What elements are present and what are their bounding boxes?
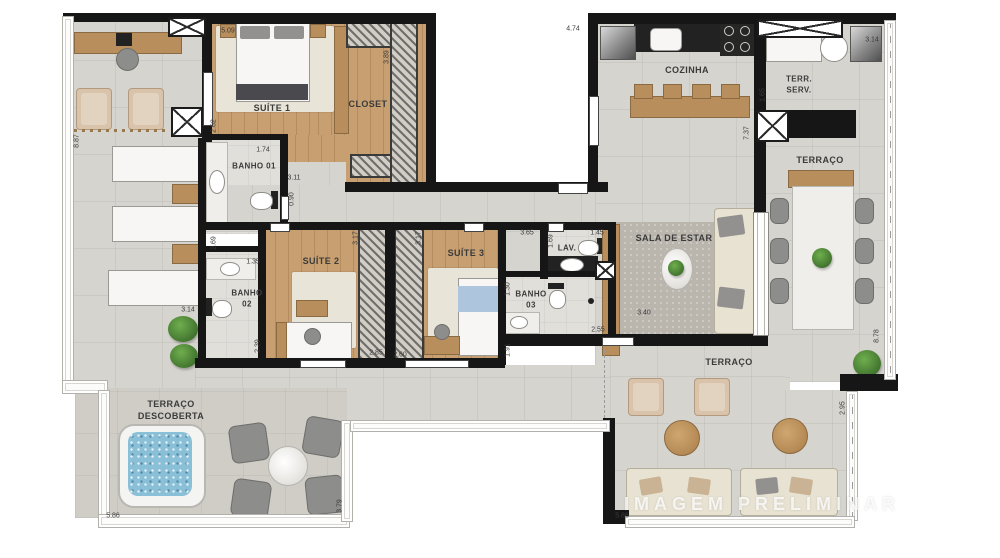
window-suite3 <box>405 360 469 368</box>
entry-door-gap <box>558 183 588 194</box>
wall-sala-left <box>608 222 616 346</box>
shaft-terrserv-top <box>757 19 843 38</box>
label-terraco-right: TERRAÇO <box>796 155 843 165</box>
closet-rack-top <box>346 22 392 48</box>
dim-2-62: 2.62 <box>211 119 218 133</box>
dim-2-39: 2.39 <box>255 339 262 353</box>
label-terrserv-l1: TERR. <box>786 75 812 84</box>
dining-chair-4 <box>855 198 874 224</box>
wall-top-kitchen <box>588 13 896 24</box>
label-suite2: SUÍTE 2 <box>303 256 340 266</box>
banho1-sink <box>209 170 225 194</box>
label-cozinha: COZINHA <box>665 65 709 75</box>
plant-left-1 <box>168 316 198 342</box>
suite1-pillow-2 <box>274 26 304 39</box>
dim-8-87: 8.87 <box>74 134 81 148</box>
suite3-wardrobe <box>394 228 424 360</box>
sala-pillow-1 <box>717 214 746 237</box>
dim-5-86-left: 5.86 <box>106 513 120 520</box>
laundry-counter <box>766 36 822 62</box>
stool-4 <box>721 84 740 99</box>
label-terraco-desc-l2: DESCOBERTA <box>138 411 204 421</box>
suite2-wardrobe <box>358 228 388 360</box>
dim-7-37: 7.37 <box>744 126 751 140</box>
label-sala: SALA DE ESTAR <box>636 233 713 243</box>
dining-chair-5 <box>855 238 874 264</box>
dim-1-45: 1.45 <box>590 230 604 237</box>
plant-left-2 <box>170 344 198 368</box>
floorplan: SUÍTE 1 CLOSET BANHO 01 SUÍTE 2 BANHO 02… <box>0 0 1000 558</box>
laundry-cabinet <box>850 26 882 62</box>
banho3-toilet <box>549 290 566 309</box>
terrace-table-2 <box>772 418 808 454</box>
dim-3-14-top: 3.14 <box>865 37 879 44</box>
terrace-pillow-3 <box>755 477 779 495</box>
dim-3-11: 3.11 <box>287 175 300 182</box>
sliding-door-sala <box>753 212 769 336</box>
desk-chair <box>116 48 139 71</box>
dim-8-78: 8.78 <box>874 329 881 343</box>
closet-rack-long <box>390 22 418 186</box>
label-banho2-l2: 02 <box>242 300 252 309</box>
label-suite3: SUÍTE 3 <box>448 248 485 258</box>
railing-desc-bottom <box>98 514 350 528</box>
bead-divider <box>74 129 170 132</box>
wall-sala-right-up <box>754 138 766 212</box>
label-banho2-l1: BANHO <box>231 289 262 298</box>
dim-5-09: 5.09 <box>221 28 235 35</box>
desc-chair-2 <box>301 415 345 459</box>
stool-2 <box>663 84 682 99</box>
lounge-bed-2 <box>112 206 200 242</box>
shaft-terrserv <box>756 110 789 142</box>
dim-0-90: 0.90 <box>289 192 296 206</box>
dim-3-79: 3.79 <box>337 499 344 513</box>
kitchen-island <box>630 96 750 118</box>
dim-2-55: 2.55 <box>591 327 605 334</box>
dining-chair-6 <box>855 278 874 304</box>
jacuzzi-water <box>128 432 192 496</box>
side-table-2 <box>172 244 200 264</box>
terrace-pillow-2 <box>687 477 711 496</box>
sala-plant <box>668 260 684 276</box>
dining-chair-2 <box>770 238 789 264</box>
door-suite3 <box>464 223 484 232</box>
dim-1-69: 1.69 <box>548 234 555 248</box>
window-sala <box>602 337 634 346</box>
dim-2-60: 2.60 <box>393 352 407 359</box>
wall-unit-left <box>198 138 206 368</box>
label-banho1: BANHO 01 <box>232 162 276 171</box>
dining-chair-1 <box>770 198 789 224</box>
dim-3-89: 3.89 <box>384 50 391 64</box>
desc-table <box>268 446 308 486</box>
dim-3-17-b: 3.17 <box>416 231 423 245</box>
stool-3 <box>692 84 711 99</box>
suite3-chair <box>434 324 450 340</box>
label-suite1: SUÍTE 1 <box>254 103 291 113</box>
wall-suite23 <box>385 225 395 360</box>
wall-closet-right <box>426 13 436 192</box>
terrace-armchair-2 <box>694 378 730 416</box>
label-banho3-l2: 03 <box>526 301 536 310</box>
dim-3-65: 3.65 <box>520 230 534 237</box>
lav-toilet <box>578 240 599 256</box>
dim-1-65: 1.65 <box>760 88 767 102</box>
window-kitchen-left <box>589 96 599 146</box>
suite2-desk <box>296 300 328 317</box>
side-table-1 <box>172 184 200 204</box>
dim-2-95: 2.95 <box>840 401 847 415</box>
banho3-toilet-tank <box>548 283 564 289</box>
counter-passthrough <box>786 110 856 138</box>
terrace-armchair-1 <box>628 378 664 416</box>
railing-sofa-bottom <box>625 516 855 528</box>
armchair-left-2 <box>128 88 164 130</box>
suite3-blanket <box>458 286 498 312</box>
dim-1-91: 1.91 <box>505 343 512 357</box>
dim-3-14-left: 3.14 <box>181 307 195 314</box>
label-terraco-bottom: TERRAÇO <box>705 357 752 367</box>
fridge <box>600 26 636 60</box>
suite1-pillow-1 <box>240 26 270 39</box>
suite1-blanket <box>236 84 308 100</box>
desc-chair-1 <box>228 422 271 465</box>
terrace-pillow-4 <box>789 476 813 495</box>
terrace-table-1 <box>664 420 700 456</box>
label-closet: CLOSET <box>349 99 388 109</box>
armchair-left-1 <box>76 88 112 130</box>
dim-1-35: 1.35 <box>246 259 260 266</box>
duct-banho3 <box>595 261 616 280</box>
dining-centerpiece <box>812 248 832 268</box>
dim-4-74: 4.74 <box>566 26 580 33</box>
railing-right <box>884 20 896 380</box>
watermark: IMAGEM PRELIMINAR <box>624 494 900 515</box>
suite2-chair <box>304 328 321 345</box>
wall-top-suite1 <box>200 13 436 24</box>
railing-left <box>62 16 74 386</box>
suite2-headboard <box>276 322 287 361</box>
banho1-toilet <box>250 192 273 210</box>
door-suite2 <box>270 223 290 232</box>
dim-1-30: 1.30 <box>505 282 512 296</box>
wall-banho1-top <box>202 134 288 140</box>
closet-rack-bottom <box>350 154 392 178</box>
duct-topleft <box>168 17 206 37</box>
suite1-nightstand-2 <box>310 24 326 38</box>
laundry-tub <box>820 34 848 62</box>
banho2-toilet <box>212 300 232 318</box>
dim-2-85: 2.85 <box>369 350 383 357</box>
stove <box>720 22 754 56</box>
kitchen-sink <box>650 28 682 51</box>
dim-3-40: 3.40 <box>637 310 651 317</box>
railing-desc-left <box>98 390 110 524</box>
boundary-dashed <box>604 350 606 418</box>
dining-chair-3 <box>770 278 789 304</box>
label-terraco-desc-l1: TERRAÇO <box>147 399 194 409</box>
door-lav <box>548 223 564 232</box>
window-suite2 <box>300 360 346 368</box>
wall-sofaterrace-left <box>603 418 615 520</box>
lav-sink <box>560 258 584 272</box>
dim-2-69: 2.69 <box>211 236 218 250</box>
railing-void-top <box>350 420 610 432</box>
banho3-shower-head <box>588 298 594 304</box>
laptop <box>116 33 132 46</box>
label-banho3-l1: BANHO <box>515 290 546 299</box>
label-terrserv-l2: SERV. <box>786 86 811 95</box>
banho3-sink <box>510 316 528 329</box>
label-lav: LAV. <box>558 244 577 253</box>
dim-1-74: 1.74 <box>256 147 270 154</box>
shaft-left <box>171 107 203 137</box>
dim-3-17-a: 3.17 <box>353 231 360 245</box>
plant-right-terrace <box>853 350 881 377</box>
banho2-sink <box>220 262 240 276</box>
lounge-bed-1 <box>112 146 200 182</box>
lounge-bed-3 <box>108 270 200 306</box>
stool-1 <box>634 84 653 99</box>
sala-pillow-2 <box>717 286 745 309</box>
